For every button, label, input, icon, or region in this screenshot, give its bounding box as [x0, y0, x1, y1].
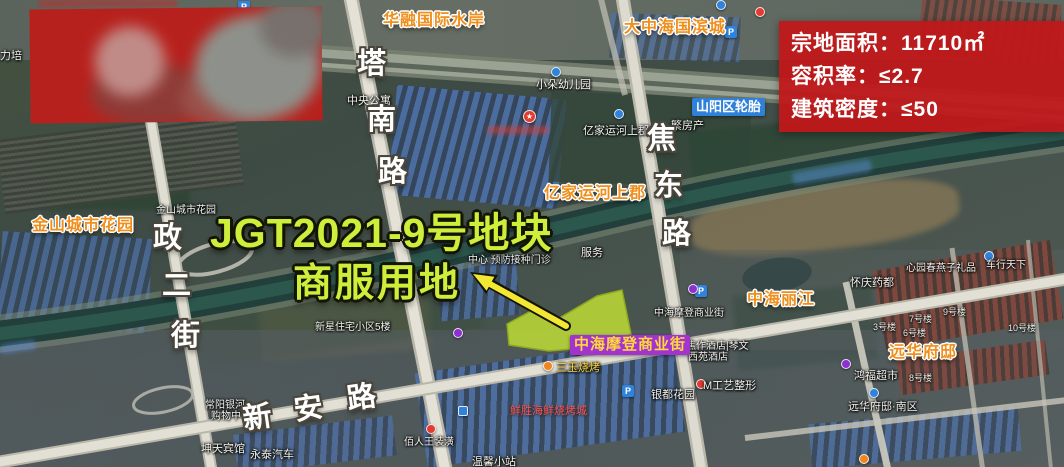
poi-icon	[426, 424, 436, 434]
map-label: 亿家运河上郡	[583, 125, 649, 137]
map-canvas: P P P P ★ 中央公寓 小朵幼儿园 金山城市花园 亿家运河上郡 繁房产 服…	[0, 0, 1064, 467]
map-label: 西苑酒店	[688, 352, 728, 363]
map-label: 温馨小站	[472, 456, 516, 467]
info-label: 宗地面积：	[791, 32, 901, 55]
info-value: 11710㎡	[901, 32, 985, 55]
residence-icon	[869, 388, 879, 398]
small-red-text-blur	[38, 0, 178, 7]
map-label: 佰人王装潢	[404, 437, 454, 448]
street-right-v3	[1028, 240, 1052, 467]
shop-icon	[453, 328, 463, 338]
landmark-zhonghai-lijiang: 中海丽江	[747, 285, 815, 309]
landmark-huarong: 华融国际水岸	[383, 6, 485, 30]
info-label: 建筑密度：	[791, 98, 901, 121]
landmark-dazhonghai: 大中海国滨城	[624, 13, 726, 37]
map-label: 中海摩登商业街	[654, 308, 724, 319]
map-label: 力培	[0, 50, 22, 62]
map-label: M工艺整形	[703, 380, 756, 392]
map-label: 服务	[581, 247, 603, 259]
building-number: 3号楼	[873, 320, 896, 333]
road-char: 塔	[357, 50, 386, 79]
star-glyph: ★	[526, 112, 533, 121]
road-char: 焦	[647, 125, 676, 154]
road-char: 街	[171, 322, 200, 351]
redacted-overlay	[29, 6, 322, 123]
ramp-loop-b	[131, 382, 195, 418]
map-label: 鸿福超市	[854, 370, 898, 382]
parcel-info-panel: 宗地面积：11710㎡ 容积率：≤2.7 建筑密度：≤50	[779, 21, 1064, 132]
building-number: 10号楼	[1008, 321, 1036, 334]
map-label-restaurant: 鲜胜海鲜烧烤城	[510, 405, 587, 417]
map-label: 车行天下	[986, 260, 1026, 271]
small-red-text-blur	[487, 126, 549, 134]
building-number: 8号楼	[909, 371, 932, 384]
road-char: 新	[241, 402, 274, 435]
info-value: ≤50	[901, 98, 939, 121]
tag-shopping-street: 中海摩登商业街	[570, 335, 690, 355]
building-number: 9号楼	[943, 305, 966, 318]
poi-icon	[755, 7, 765, 17]
map-label: 焦作酒店|琴文	[686, 341, 749, 352]
redaction-blob	[95, 26, 166, 97]
info-row-far: 容积率：≤2.7	[791, 60, 1052, 93]
map-label: 怀庆药都	[850, 277, 894, 289]
road-char: 路	[662, 220, 691, 249]
map-label: 金山城市花园	[156, 205, 216, 216]
poi-icon	[859, 454, 869, 464]
map-label: 远华府邸·南区	[848, 401, 918, 413]
poi-icon	[716, 0, 726, 10]
parking-icon: P	[622, 385, 634, 397]
kindergarten-icon	[551, 67, 561, 77]
road-char: 路	[378, 158, 407, 187]
info-label: 容积率：	[791, 65, 879, 88]
info-value: ≤2.7	[879, 65, 924, 88]
map-label: 新星住宅小区5楼	[315, 322, 391, 333]
landmark-yuanhua: 远华府邸	[889, 338, 957, 362]
map-label-restaurant: 三玉烧烤	[556, 362, 600, 374]
road-char: 东	[654, 172, 683, 201]
map-label: 永泰汽车	[250, 449, 294, 461]
residence-icon	[614, 109, 624, 119]
building-number: 7号楼	[909, 312, 932, 325]
road-char: 二	[162, 272, 191, 301]
road-char: 政	[153, 224, 182, 253]
scenic-star-icon: ★	[523, 110, 536, 123]
hotel-icon	[458, 406, 468, 416]
shop-icon	[688, 284, 698, 294]
map-label: 坤天宾馆	[201, 443, 245, 455]
landmark-yijia: 亿家运河上郡	[544, 179, 646, 203]
map-label: 中心 预防接种门诊	[468, 255, 551, 266]
info-row-area: 宗地面积：11710㎡	[791, 27, 1052, 60]
map-label: 心园春燕子礼品	[906, 263, 976, 274]
road-char: 路	[345, 382, 378, 415]
restaurant-icon	[543, 361, 553, 371]
landmark-jinshan: 金山城市花园	[32, 211, 134, 235]
parcel-title-line2: 商服用地	[293, 264, 461, 303]
info-row-density: 建筑密度：≤50	[791, 93, 1052, 126]
map-label: 银都花园	[651, 389, 695, 401]
map-label: 小朵幼儿园	[536, 79, 591, 91]
parking-icon: P	[725, 26, 737, 38]
supermarket-icon	[841, 359, 851, 369]
parcel-title-line1: JGT2021-9号地块	[210, 213, 552, 254]
map-label: 常阳银河	[205, 400, 245, 411]
road-char: 安	[292, 393, 325, 426]
tag-tire-factory: 山阳区轮胎	[692, 98, 765, 116]
road-char: 南	[367, 106, 396, 135]
